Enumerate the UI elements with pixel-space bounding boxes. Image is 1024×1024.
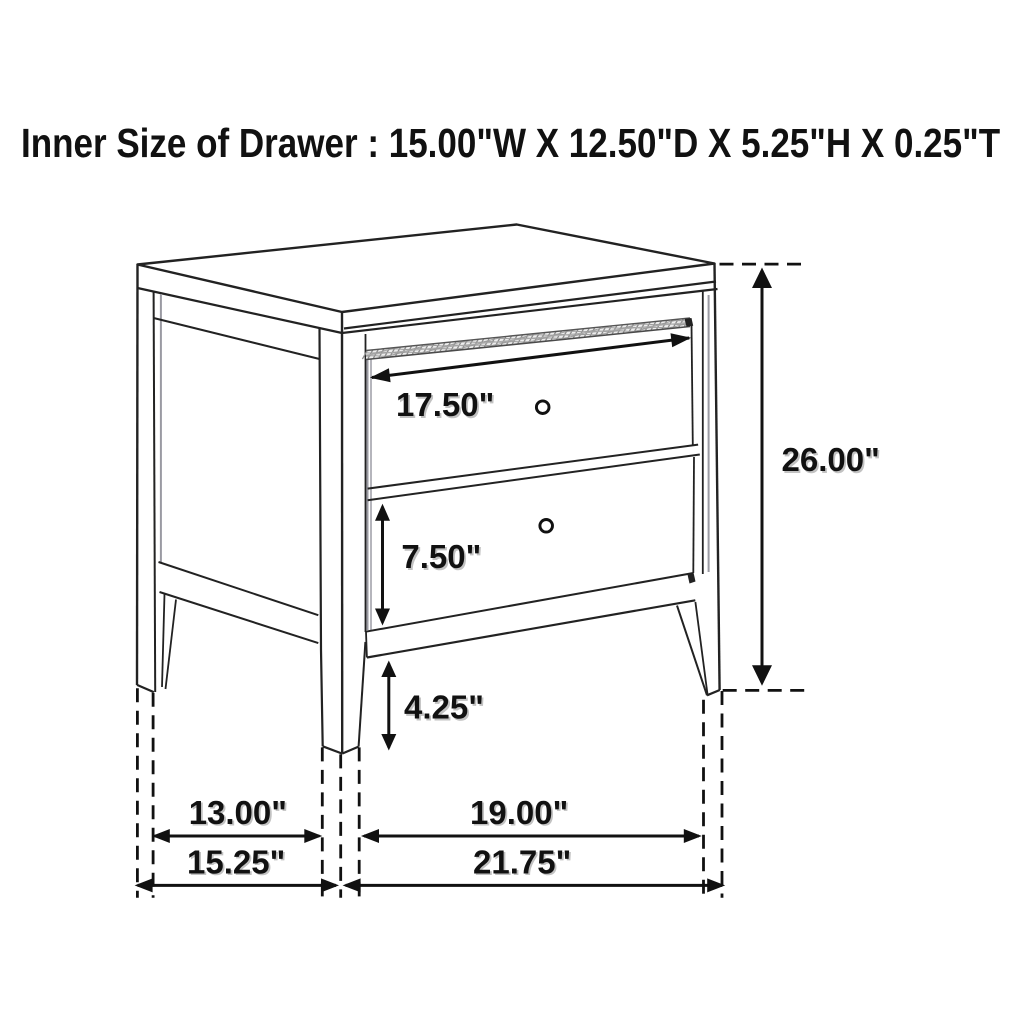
svg-text:7.50": 7.50" bbox=[401, 538, 481, 575]
svg-text:21.75": 21.75" bbox=[473, 843, 571, 880]
svg-text:13.00": 13.00" bbox=[189, 794, 287, 831]
svg-text:26.00": 26.00" bbox=[782, 441, 880, 478]
svg-text:4.25": 4.25" bbox=[404, 689, 484, 726]
svg-text:15.25": 15.25" bbox=[187, 843, 285, 880]
svg-text:19.00": 19.00" bbox=[470, 794, 568, 831]
svg-text:17.50": 17.50" bbox=[396, 386, 494, 423]
